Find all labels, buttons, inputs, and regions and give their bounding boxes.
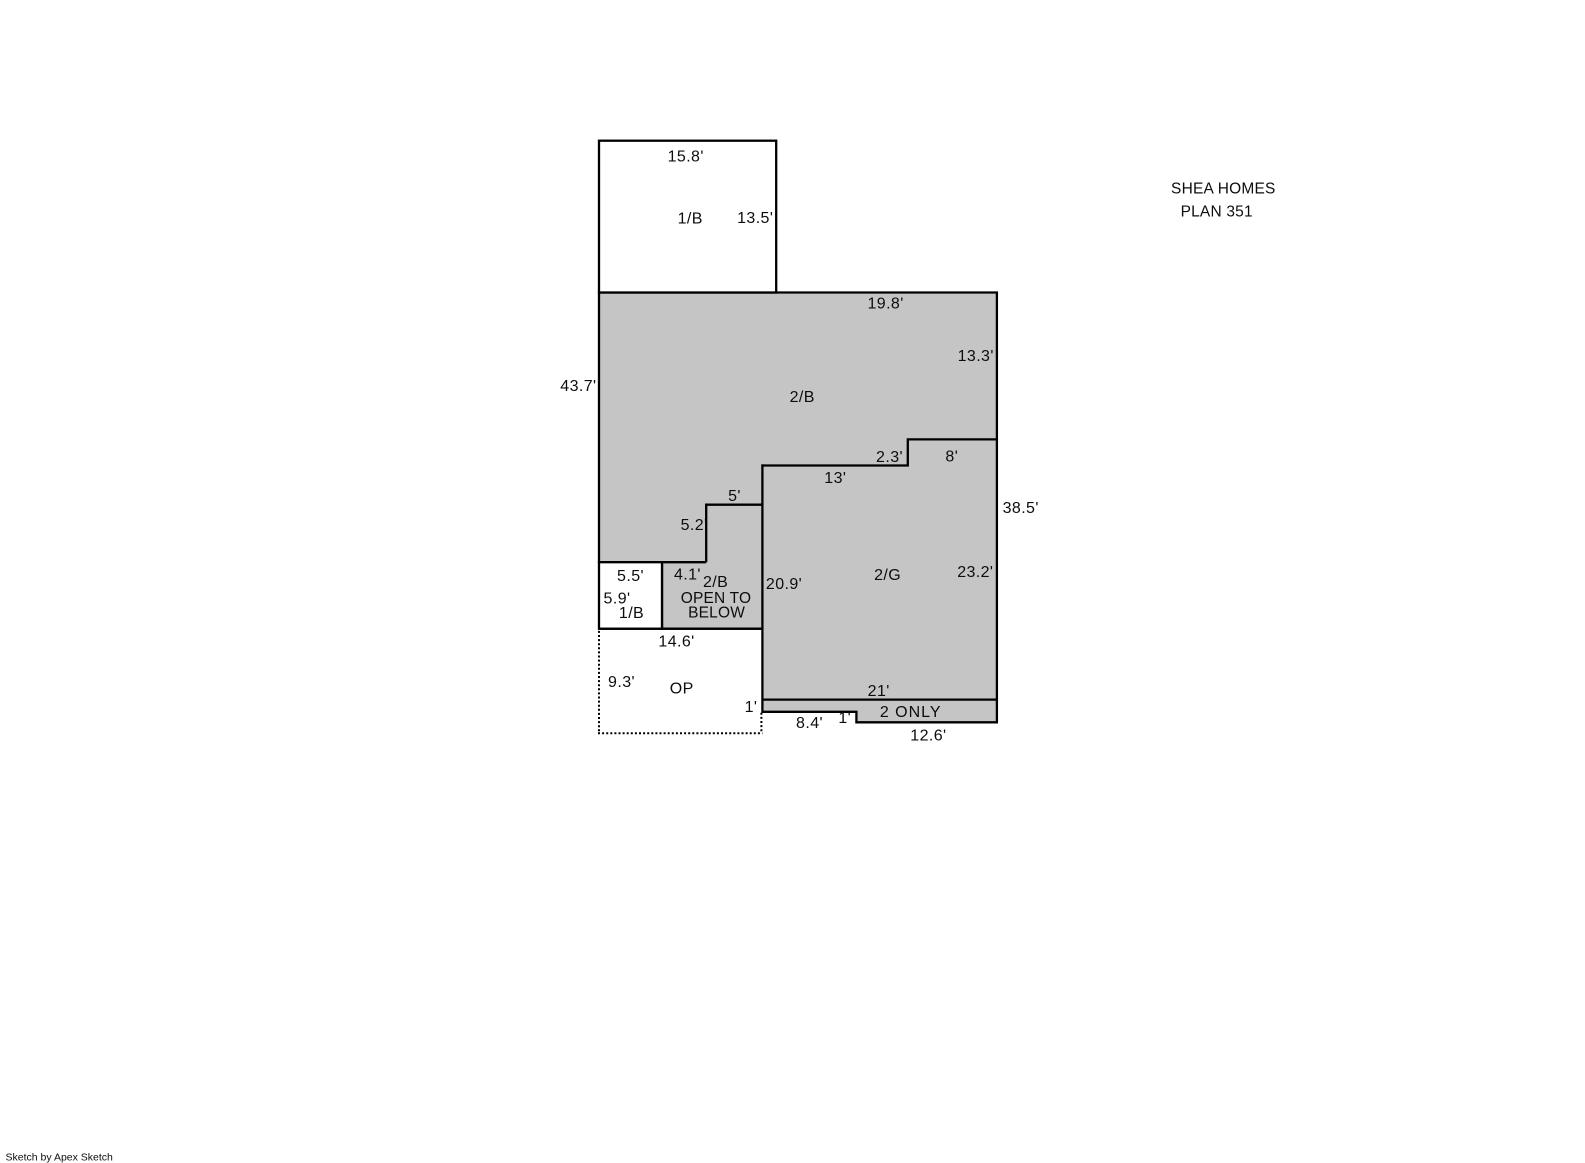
svg-text:2.3': 2.3' [876,449,903,466]
svg-text:12.6': 12.6' [910,728,946,745]
svg-text:PLAN 351: PLAN 351 [1181,204,1253,221]
svg-text:20.9': 20.9' [766,576,802,593]
svg-text:1': 1' [745,699,758,716]
svg-text:2/B: 2/B [703,574,728,591]
svg-text:OP: OP [670,681,694,698]
svg-text:38.5': 38.5' [1003,500,1039,517]
svg-text:2 ONLY: 2 ONLY [880,704,942,721]
svg-text:2/G: 2/G [874,567,901,584]
svg-text:2/B: 2/B [790,389,815,406]
svg-text:13': 13' [824,470,846,487]
svg-text:13.3': 13.3' [958,348,994,365]
svg-text:Sketch by Apex Sketch: Sketch by Apex Sketch [6,1152,114,1163]
svg-text:43.7': 43.7' [560,378,596,395]
svg-text:14.6': 14.6' [658,634,694,651]
svg-text:8.4': 8.4' [796,715,823,732]
svg-text:13.5': 13.5' [737,210,773,227]
svg-text:SHEA HOMES: SHEA HOMES [1171,181,1276,198]
svg-text:23.2': 23.2' [957,564,993,581]
svg-text:19.8': 19.8' [867,296,903,313]
svg-text:1/B: 1/B [678,210,703,227]
svg-text:8': 8' [945,449,958,466]
svg-text:5.5': 5.5' [617,568,644,585]
svg-text:9.3': 9.3' [608,674,635,691]
svg-text:5.2': 5.2' [681,517,708,534]
svg-text:4.1': 4.1' [674,567,701,584]
svg-text:BELOW: BELOW [688,605,745,622]
svg-text:15.8': 15.8' [668,149,704,166]
svg-text:21': 21' [868,683,890,700]
svg-text:1': 1' [838,710,851,727]
svg-text:5': 5' [728,488,741,505]
svg-text:1/B: 1/B [619,605,644,622]
